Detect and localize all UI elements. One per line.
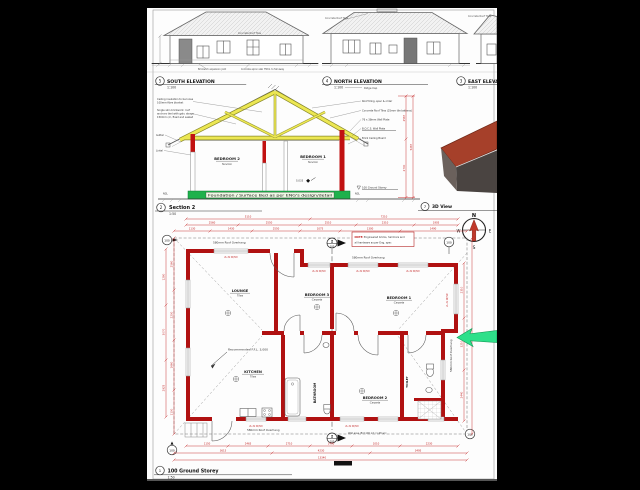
svg-text:1490: 1490 — [430, 227, 437, 231]
plan-note-box: NOTE: Engineered bricks, hardcore and al… — [352, 232, 414, 247]
compass-s: S — [473, 245, 476, 251]
svg-text:Lintel: Lintel — [156, 149, 163, 153]
ridge-cap-label: Ridge Cap — [364, 86, 378, 90]
room-kitchen: KITCHEN — [244, 370, 262, 374]
letterbox-bottom — [0, 481, 640, 490]
svg-text:2465: 2465 — [245, 442, 252, 446]
south-ref: 5 — [159, 79, 162, 84]
svg-text:B.O.C.S. Wall Plate: B.O.C.S. Wall Plate — [362, 127, 386, 131]
room-lounge: LOUNGE — [232, 289, 249, 293]
svg-text:NOTE:: NOTE: — [355, 235, 364, 239]
svg-text:100: 100 — [169, 448, 175, 452]
room-toilet: TOILET — [405, 375, 409, 388]
plan-title: 100 Ground Storey — [168, 469, 220, 475]
north-scale: 1:100 — [334, 86, 343, 90]
letterbox-right — [497, 0, 640, 490]
svg-text:Carpets: Carpets — [370, 401, 381, 405]
wall-area-note: Wall area (Ext 100 int.) 1:48 w/c — [348, 432, 387, 435]
svg-text:2L.3k W/Hdr: 2L.3k W/Hdr — [312, 270, 326, 273]
svg-text:Gutter: Gutter — [156, 133, 165, 137]
svg-text:100mm fibre blanket: 100mm fibre blanket — [157, 100, 183, 104]
svg-text:2L.3k W/Hdr: 2L.3k W/Hdr — [446, 293, 449, 307]
svg-text:Tiles: Tiles — [250, 375, 257, 379]
north-roof-note: Concrete Roof Tiles — [325, 17, 349, 20]
ground-note-2: Concrete apron slab 75thk. to fall away — [241, 68, 285, 71]
sans-mark-label: S.033 — [296, 179, 304, 183]
svg-text:2700: 2700 — [402, 164, 406, 171]
svg-text:Tiles: Tiles — [237, 294, 244, 298]
svg-text:2560: 2560 — [209, 221, 216, 225]
svg-text:5267: 5267 — [409, 143, 413, 150]
overhang-label-top-right: 580mm Roof Overhang — [352, 256, 385, 260]
svg-text:3615: 3615 — [220, 449, 227, 453]
drawing-sheet-viewer: Concrete Roof Tiles Brickwork expansion … — [0, 0, 640, 490]
overhang-label-top-left: 580mm Roof Overhang — [213, 241, 246, 245]
svg-text:Single skin brickwork: roof: Single skin brickwork: roof — [157, 108, 190, 112]
ffl-note: Recommended F.F.L. 3,000 — [228, 348, 268, 352]
svg-text:1300: 1300 — [367, 227, 374, 231]
svg-text:76 x 38mm Wall Plate: 76 x 38mm Wall Plate — [362, 118, 390, 122]
section-room-left-sub: Novilon — [222, 162, 232, 166]
svg-text:1075: 1075 — [317, 227, 324, 231]
svg-text:Roof tiling, spec & order: Roof tiling, spec & order — [362, 99, 393, 103]
svg-text:1010: 1010 — [373, 442, 380, 446]
svg-text:2550: 2550 — [266, 221, 273, 225]
svg-text:NGL: NGL — [355, 193, 360, 196]
svg-text:2550: 2550 — [273, 227, 280, 231]
room-bedroom2: BEDROOM 2 — [363, 396, 388, 400]
svg-text:2440: 2440 — [460, 391, 464, 398]
svg-text:100: 100 — [164, 238, 170, 242]
svg-text:1905: 1905 — [433, 221, 440, 225]
ground-note-1: Brickwork expansion joint — [198, 68, 226, 71]
svg-text:150mm c/c, fixed and sealed: 150mm c/c, fixed and sealed — [157, 115, 194, 119]
svg-text:Carpets: Carpets — [312, 298, 323, 302]
north-title: NORTH ELEVATION — [334, 79, 382, 85]
basin-bathroom — [323, 343, 329, 348]
svg-text:Engineered bricks, hardcore an: Engineered bricks, hardcore and — [364, 235, 405, 239]
svg-text:2310: 2310 — [460, 286, 464, 293]
svg-text:2560: 2560 — [170, 260, 174, 267]
svg-text:Brick Ceiling Board: Brick Ceiling Board — [362, 136, 386, 140]
south-title: SOUTH ELEVATION — [167, 79, 215, 85]
basin-toilet — [426, 387, 432, 392]
svg-text:1430: 1430 — [228, 227, 235, 231]
svg-text:2230: 2230 — [426, 442, 433, 446]
svg-text:2200: 2200 — [170, 311, 174, 318]
architectural-drawing-canvas: Concrete Roof Tiles Brickwork expansion … — [0, 0, 640, 490]
section-room-left: BEDROOM 2 — [214, 156, 240, 161]
svg-text:3495: 3495 — [415, 449, 422, 453]
svg-text:1100: 1100 — [170, 408, 174, 415]
svg-text:13340: 13340 — [318, 456, 327, 460]
svg-text:7210: 7210 — [381, 215, 388, 219]
letterbox-top — [0, 0, 640, 8]
section-ref: 2 — [160, 205, 163, 210]
stove — [262, 408, 272, 417]
east-ref: 3 — [460, 79, 463, 84]
svg-text:100 Ground Storey: 100 Ground Storey — [362, 185, 387, 189]
svg-text:Concrete Roof Tiles (25mm tile: Concrete Roof Tiles (25mm tile battens) — [362, 109, 412, 113]
overhang-label-right: 580mm Roof Overhang — [449, 339, 453, 372]
view3d-title: 3D View — [432, 204, 452, 210]
svg-text:2L.3k W/Hdr: 2L.3k W/Hdr — [345, 425, 359, 428]
svg-text:1660: 1660 — [170, 361, 174, 368]
section-title: Section 2 — [169, 205, 196, 211]
svg-text:3210: 3210 — [460, 340, 464, 347]
section-scale: 1:50 — [169, 212, 176, 216]
svg-text:1280: 1280 — [162, 273, 166, 280]
foundation-note: Foundation / Surface Bed as per ENG's de… — [208, 194, 332, 198]
east-scale: 1:100 — [468, 86, 477, 90]
compass-n: N — [472, 213, 476, 219]
section-room-right: BEDROOM 1 — [300, 154, 326, 159]
north-door — [404, 38, 417, 64]
svg-text:1490: 1490 — [328, 442, 335, 446]
svg-text:all hardware as per Eng. spec: all hardware as per Eng. spec — [355, 241, 393, 245]
svg-text:100: 100 — [330, 245, 335, 248]
svg-text:100: 100 — [446, 240, 452, 244]
svg-text:anchors tied with galv. straps: anchors tied with galv. straps — [157, 111, 195, 115]
south-roof-note: Concrete Roof Tiles — [238, 32, 262, 35]
svg-text:2567: 2567 — [402, 114, 406, 121]
svg-text:Ceiling insulation to be loose: Ceiling insulation to be loose — [157, 97, 194, 101]
wall-left-top — [191, 134, 196, 152]
wall-right — [340, 130, 345, 197]
scale-bar — [334, 461, 352, 466]
svg-text:1130: 1130 — [189, 227, 196, 231]
svg-text:4230: 4230 — [318, 449, 325, 453]
sheet-bottom-shadow — [147, 479, 497, 481]
section-room-right-sub: Novilon — [308, 160, 318, 164]
svg-text:NGL: NGL — [163, 193, 168, 196]
north-ref: 4 — [326, 79, 329, 84]
svg-text:3070: 3070 — [162, 328, 166, 335]
chimney-cap — [377, 9, 397, 12]
room-bedroom1: BEDROOM 1 — [387, 296, 412, 300]
svg-text:Carpets: Carpets — [394, 301, 405, 305]
room-bedroom3: BEDROOM 3 — [305, 293, 330, 297]
svg-text:1150: 1150 — [204, 442, 211, 446]
svg-text:2L.3k W/Hdr: 2L.3k W/Hdr — [224, 256, 238, 259]
svg-text:5110: 5110 — [245, 215, 252, 219]
svg-text:2L.3k W/Hdr: 2L.3k W/Hdr — [356, 270, 370, 273]
svg-text:2L.3k W/Hdr: 2L.3k W/Hdr — [406, 270, 420, 273]
svg-text:2925: 2925 — [162, 384, 166, 391]
svg-text:2710: 2710 — [286, 442, 293, 446]
letterbox-left — [0, 0, 147, 490]
room-bathroom: BATHROOM — [313, 383, 317, 404]
svg-text:2510: 2510 — [325, 221, 332, 225]
east-roof-note: Concrete Roof Tiles — [468, 15, 492, 18]
svg-text:2310: 2310 — [382, 221, 389, 225]
overhang-label-bottom: 580mm Roof Overhang — [247, 428, 280, 432]
south-scale: 1:100 — [167, 86, 176, 90]
